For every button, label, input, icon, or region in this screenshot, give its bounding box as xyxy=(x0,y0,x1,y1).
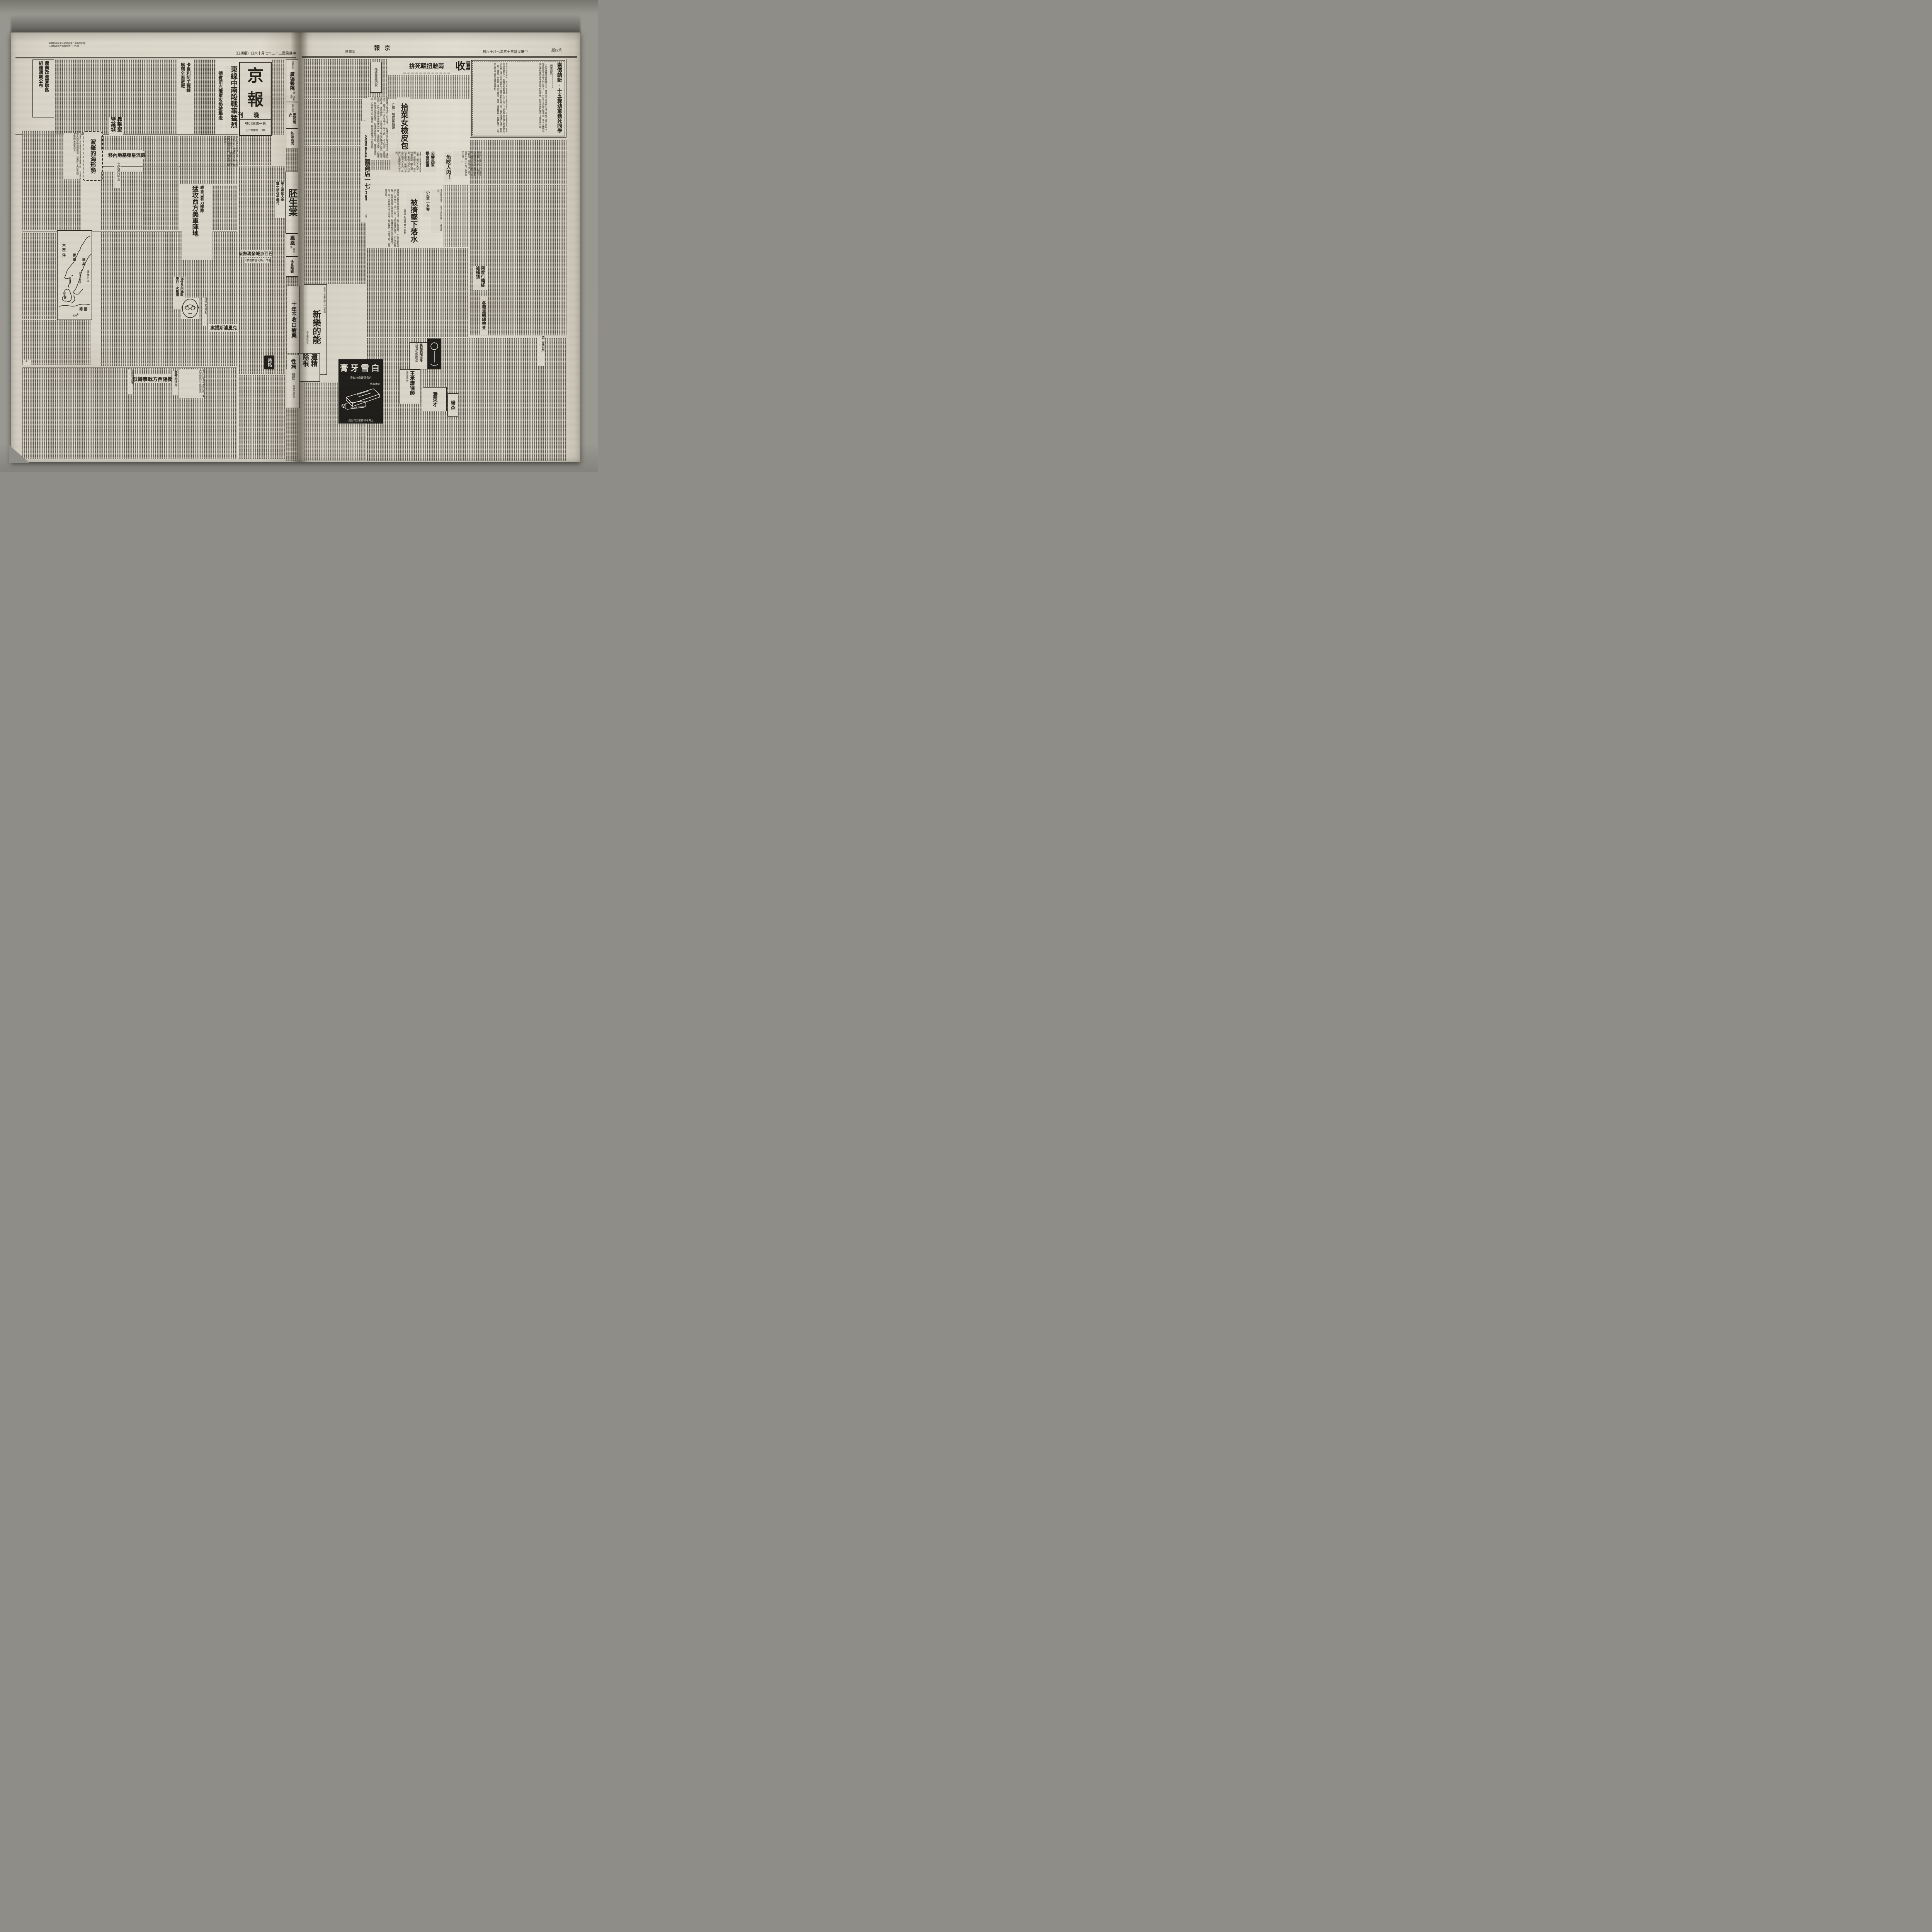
headline-hengyang-fighting: 衡陽西方戰事轉烈 xyxy=(134,374,171,383)
ad-morning-phlegm: 晨起痰喘很多 是否初期肺病 xyxy=(410,342,428,369)
subhead-two-women-brawl: 兩雌扭毆死拚 xyxy=(403,61,450,70)
ad-doctor-yang: 楊杰 xyxy=(447,393,458,417)
essay-baltic-body xyxy=(22,233,56,319)
essay-part-marker: （上） xyxy=(23,360,31,365)
scanner-top-shadow xyxy=(11,15,580,34)
swimming-pool-snippet: 今夏酷暑迫人，游泳池開放後，一番活躍矣。 xyxy=(431,189,442,233)
postal-registration: 中華郵政特准掛號認為第二類新聞紙類 江蘇郵政管理局執照第一〇九號 xyxy=(49,43,107,53)
ad-vd-services: 電療淋病花柳 xyxy=(292,382,295,402)
right-header-paper-title: 京報 xyxy=(370,44,395,52)
headline-forged-money-order: 偽造匯票領款 xyxy=(370,62,382,93)
headline-north-china-games: 華北運動大會 雙十節在平舉行 xyxy=(275,182,285,218)
body-text-block xyxy=(201,60,215,134)
body-text-block xyxy=(180,136,238,184)
kicker-train-passenger: 小火車一女客 xyxy=(423,190,430,217)
masthead-issue-number: 第一四三〇號 xyxy=(240,119,271,127)
subhead-lawsuit: 弄得一場官司臨頭 xyxy=(389,103,395,139)
ad-aifu-raincoat: 南京特約 愛弗雨衣 xyxy=(286,103,298,128)
body-text-block xyxy=(304,146,366,284)
ad-phoenix-theatre: 鳳凰 一飛劇團 xyxy=(286,233,298,257)
headline-box-agriculture: 農業改進實驗區 組織通則公布 xyxy=(32,60,54,117)
agriculture-headline-2: 組織通則公布 xyxy=(37,61,43,118)
ad-zimei-name: 姊妹商店 xyxy=(290,131,294,145)
map-label-ocean: 大西洋 xyxy=(62,243,66,257)
column-logo-text: 時話 xyxy=(267,358,272,367)
ad-aifu-name: 愛弗雨衣 xyxy=(288,113,296,126)
headline-vehicle-inspection: 各種車輛總檢查 xyxy=(480,296,488,335)
essay-baltic-excerpt: 波羅的海在地理上也不僅是疆界線……它和蘇俄大陸有極端的環境，位置於三大陸之間……… xyxy=(64,133,81,179)
headline-scavenger-girl-purse: 拾菜女檢皮包 xyxy=(396,97,410,155)
games-headline-2: 雙十節在平舉行 xyxy=(276,182,280,218)
body-text-block xyxy=(272,60,285,135)
right-header-rule xyxy=(302,56,577,58)
ad-aifu-note: 南京特約 xyxy=(291,104,294,113)
right-header-dateline: 中華民國三十三年七月十六日 xyxy=(458,49,528,54)
ad-whitesnow-company: 上海永和實業公司出品 xyxy=(339,418,383,422)
ad-lawyer-name: 王承謙律師 xyxy=(409,371,415,405)
body-text-block xyxy=(101,172,142,230)
svg-text:挪威: 挪威 xyxy=(73,253,76,261)
ad-yijing-text: 遺精 xyxy=(310,354,317,381)
ad-whitesnow-slogan: 白雪牙膏齒白如雪 xyxy=(339,376,383,380)
ad-mouth-sore-text: 十年不收口瘡藥 xyxy=(290,301,296,338)
headline-turkey-neutral: 土仍堅持中立 xyxy=(114,162,121,188)
ad-xuchang-optical: 徐昌眼鏡 xyxy=(286,257,298,277)
section-rule xyxy=(22,367,237,367)
ad-guangde-note: 由滬移京 xyxy=(291,61,294,71)
masthead-box: 京 報 晚刊 第一四三〇號 每日一張國幣二元 xyxy=(239,62,272,136)
headline-karelia: 卡累利阿主戰線 展開全面激戰 xyxy=(178,62,192,122)
masthead-price: 每日一張國幣二元 xyxy=(240,127,271,133)
body-text-block xyxy=(367,338,566,461)
ad-chugen-text: 除根 xyxy=(301,354,309,381)
body-text-block xyxy=(470,140,566,184)
masthead-edition: 晚刊 xyxy=(240,110,271,119)
agriculture-headline-1: 農業改進實驗區 xyxy=(44,61,49,118)
headline-thief-caught: 兩度行竊終被捕獲 xyxy=(473,266,487,290)
ad-lawyer-wang: 王承謙律師 南京事務所 xyxy=(400,369,420,404)
horsecart-headline-2: 提高票價 xyxy=(424,151,429,172)
headline-fish-eat-flesh: 魚吃人肉！ xyxy=(444,152,452,182)
right-header-weekday: 星期日 xyxy=(339,49,355,54)
ad-phlegm-line2: 是否初期肺病 xyxy=(415,344,418,368)
svg-text:波羅的海: 波羅的海 xyxy=(87,270,90,282)
essay-dragonfly-title: 索償蜻蜓·十五歲幼童勒死同學 xyxy=(556,62,562,134)
body-text-block xyxy=(304,99,366,145)
body-text-block xyxy=(101,136,142,150)
small-ads-block xyxy=(286,148,298,171)
ad-vd-clinic: 性病 醫院 電療淋病花柳 xyxy=(287,355,300,408)
section-rule xyxy=(367,150,481,150)
ad-xinle-line1: 男用白色藥片解決一切淋病 xyxy=(323,287,325,345)
body-text-block xyxy=(101,232,146,366)
ad-lawyer-note: 南京事務所 xyxy=(405,371,408,405)
body-text-block xyxy=(367,248,468,337)
ad-yang-name: 楊杰 xyxy=(450,400,456,410)
essay-box-baltic: 波羅的海形勢 xyxy=(83,131,103,181)
ad-white-snow-toothpaste: 白雪牙膏 白雪牙膏齒白如雪 到處有售 WHITE SNOW 上海永和實業公司出品 xyxy=(338,359,383,423)
essay-kicker-tianjin: 天津通訊 xyxy=(548,65,553,88)
left-page-dateline: 中華民國三十三年七月十六日（星期日） xyxy=(212,51,296,56)
notice-district-office: 第二區公所 xyxy=(537,336,545,366)
ad-xuchang-name: 徐昌眼鏡 xyxy=(290,260,294,273)
subhead-dvinsk-offensive: 德賓斯克俄軍攻勢被擊退 xyxy=(216,71,223,132)
cartoon-gandhi xyxy=(181,298,199,319)
headline-eastern-front: 東線中南段戰事猛烈 xyxy=(225,66,238,136)
headline-cripps-proposal: 克里浦斯提案 xyxy=(209,324,239,332)
essay-baltic-title: 波羅的海形勢 xyxy=(89,139,96,173)
map-baltic-svg: 大西洋 挪威 瑞典 丹麥 德國 奧斯陸 斯德哥爾摩 波羅的海 柏林 xyxy=(58,231,92,320)
right-header-page-number: 第四版 xyxy=(543,48,562,53)
ad-guangde-name: 廣德醫院 xyxy=(289,71,295,91)
small-ads-block xyxy=(286,408,298,461)
map-baltic-region: 大西洋 挪威 瑞典 丹麥 德國 奧斯陸 斯德哥爾摩 波羅的海 柏林 xyxy=(57,230,92,320)
masthead-title-bottom: 報 xyxy=(240,86,271,110)
svg-text:瑞典: 瑞典 xyxy=(82,258,85,266)
horsecart-headline-1: 公營馬車 xyxy=(430,151,434,172)
headline-pushed-into-water: 被擠墜下落水 xyxy=(406,193,420,248)
ad-guangde-services: 痔·外科·花柳 xyxy=(289,92,295,101)
ad-whitesnow-name: 白雪牙膏 xyxy=(339,360,383,376)
masthead-title-top: 京 xyxy=(240,62,271,86)
black-ad-box xyxy=(427,338,441,369)
body-text-block xyxy=(143,136,179,230)
hengyang-lede: 十六日據上海美通社訊：美大使赫爾利氏由渝飛返…… xyxy=(179,369,204,398)
ad-zimei-shop: 姊妹商店 xyxy=(286,128,298,148)
svg-text:柏林: 柏林 xyxy=(73,314,78,317)
horsecart-lede: 本市公營馬車自添設以來，便利人民交通，成績甚佳，近以物價高漲，開支加增，車價乃自… xyxy=(391,151,421,173)
subhead-brazil-fever: 名曰『馬利亞特倫熱』 xyxy=(245,258,270,263)
karelia-headline-2: 展開全面激戰 xyxy=(180,63,185,121)
essay-baltic-body xyxy=(22,320,91,365)
headline-brazil-fever: 巴西京城發現熱症 xyxy=(240,250,272,257)
body-text-block xyxy=(239,375,285,459)
ad-vd-name: 性病 xyxy=(290,356,296,372)
svg-text:奧斯陸: 奧斯陸 xyxy=(69,276,71,284)
svg-text:斯德哥爾摩: 斯德哥爾摩 xyxy=(79,272,82,284)
karelia-headline-1: 卡累利阿主戰線 xyxy=(185,63,190,121)
bulgaria-headline-2: 舉行二次集議 xyxy=(175,277,179,309)
headline-attack-us-positions: 威克日有力部隊 猛攻西方美軍陣地 xyxy=(182,185,213,260)
headline-horsecart-fares: 公營馬車 提高票價 xyxy=(423,151,436,172)
essay-paragraph-2: 尚未成年的時代，而他却能因為小小事故便殺人，這倒確實不是件簡單的社會事件了，也難… xyxy=(474,63,507,134)
attack-headline: 猛攻西方美軍陣地 xyxy=(190,185,198,259)
headline-saint-lo: 轟擊聖特羅城 xyxy=(109,117,123,135)
essay-box-dragonfly: 索償蜻蜓·十五歲幼童勒死同學 天津通訊 「你說這算是個什麼年月，連那乳毛未淨的小… xyxy=(470,59,566,138)
left-header-rule xyxy=(15,57,296,58)
body-text-block xyxy=(239,136,271,165)
body-text-block xyxy=(211,185,238,230)
scanned-newspaper-spread: 中華郵政特准掛號認為第二類新聞紙類 江蘇郵政管理局執照第一〇九號 中華民國三十三… xyxy=(0,0,598,472)
ad-doctor-pan: 潘英才 xyxy=(423,387,447,411)
ad-phoenix-name: 鳳凰 xyxy=(289,235,295,246)
ad-peishengtang-name: 胚生棠 xyxy=(286,189,297,216)
games-headline-1: 華北運動大會 xyxy=(281,182,284,218)
thief-caught-text: 兩度行竊終被捕獲 xyxy=(475,266,485,290)
subhead-wuding-gate: 武定門附近昨晨一車禍 xyxy=(400,209,406,247)
subhead-us-envoy: 美使未決定 xyxy=(172,371,178,395)
column-logo-shihua: 時話 xyxy=(264,355,274,369)
kicker-gandhi-opposes: 甘地表示反對 xyxy=(202,298,207,326)
headline-v1-bases: 德流星彈基地內移 xyxy=(110,151,144,159)
wavy-underline xyxy=(403,71,450,73)
attack-kicker: 威克日有力部隊 xyxy=(199,185,204,259)
ad-phoenix-note: 一飛劇團 xyxy=(289,246,295,255)
ad-yijing-chugen: 遺精 除根 xyxy=(298,353,320,382)
ad-pan-name: 潘英才 xyxy=(432,392,437,407)
essay-paragraph-1: 「你說這算是個什麼年月，連那乳毛未淨的小孩子都敢下毒手去殺人，簡直變成了個殺人的… xyxy=(501,63,547,134)
postal-line-1: 中華郵政特准掛號認為第二類新聞紙類 xyxy=(49,43,107,45)
ad-guangde-hospital: 由滬移京 廣德醫院 痔·外科·花柳 xyxy=(286,60,298,102)
body-text-block xyxy=(444,185,468,247)
ad-phlegm-line1: 晨起痰喘很多 xyxy=(419,344,423,368)
ad-peishengtang-banner: 胚生棠 xyxy=(285,172,298,233)
ad-whitesnow-illustration: WHITE SNOW xyxy=(339,384,383,413)
svg-text:德國: 德國 xyxy=(79,307,87,311)
ad-mouth-sore-medicine: 十年不收口瘡藥 xyxy=(287,286,300,353)
section-rule xyxy=(367,184,481,184)
postal-line-2: 江蘇郵政管理局執照第一〇九號 xyxy=(49,45,107,48)
train-lede: 邇來本京黃包車價亦告上漲，隨百物波動，一般市民均改乘小火車代步，故小火車上之乘客… xyxy=(367,189,399,247)
ad-vd-name2: 醫院 xyxy=(291,372,296,382)
